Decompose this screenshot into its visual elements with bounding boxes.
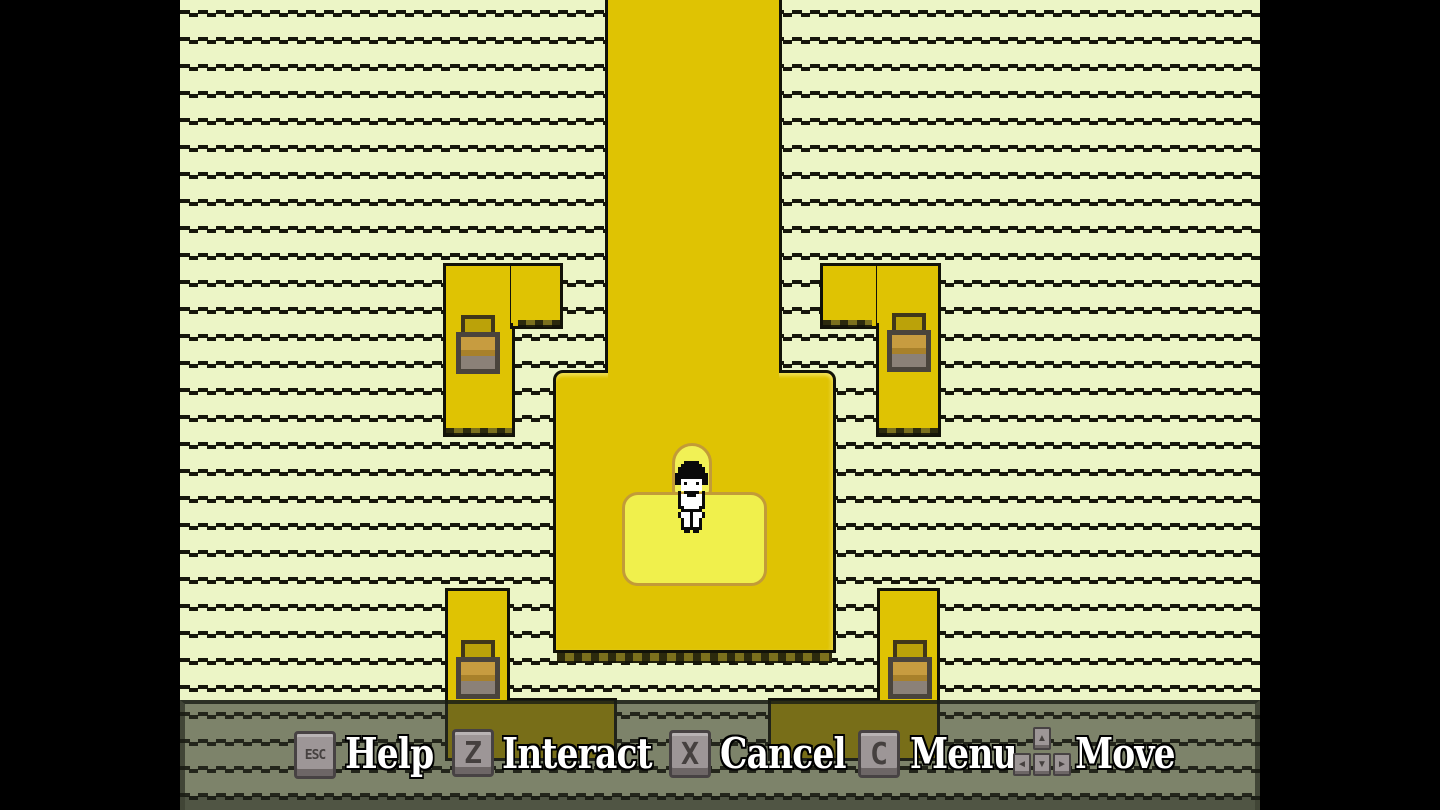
move-label: Move bbox=[1075, 733, 1175, 775]
platform-seam-patch bbox=[877, 266, 883, 323]
c-key[interactable]: C bbox=[858, 730, 900, 778]
picnic-basket-upper-right bbox=[887, 313, 931, 372]
hud-bottom-strip bbox=[185, 796, 1255, 810]
picnic-basket-upper-left bbox=[456, 315, 500, 374]
picnic-basket-lower-left bbox=[456, 640, 500, 699]
esc-key[interactable]: ESC bbox=[294, 731, 336, 779]
picnic-basket-lower-right bbox=[888, 640, 932, 699]
basket-body-icon bbox=[456, 332, 500, 374]
menu-label: Menu bbox=[910, 733, 1017, 775]
right-arrow-key[interactable]: ► bbox=[1053, 753, 1071, 776]
down-arrow-key[interactable]: ▼ bbox=[1033, 753, 1051, 776]
plaza-ledge bbox=[557, 653, 832, 663]
gold-path-top bbox=[605, 0, 782, 378]
interact-label: Interact bbox=[502, 733, 652, 775]
platform-upper-right-arm-ledge bbox=[823, 320, 872, 327]
letterboxed-screen: ESC Help Z Interact X Cancel C Menu ▲ ◄ … bbox=[0, 0, 1440, 810]
x-key[interactable]: X bbox=[669, 730, 711, 778]
path-seam-patch bbox=[608, 367, 779, 383]
platform-seam-patch bbox=[511, 266, 517, 323]
basket-body-icon bbox=[456, 657, 500, 699]
up-arrow-key[interactable]: ▲ bbox=[1033, 727, 1051, 750]
platform-upper-left-arm-ledge bbox=[518, 320, 560, 327]
left-arrow-key[interactable]: ◄ bbox=[1013, 753, 1031, 776]
arrow-keys-icon[interactable]: ▲ ◄ ▼ ► bbox=[1013, 727, 1071, 777]
game-viewport[interactable]: ESC Help Z Interact X Cancel C Menu ▲ ◄ … bbox=[180, 0, 1260, 810]
player-sprite-icon bbox=[672, 461, 711, 539]
cancel-label: Cancel bbox=[720, 733, 846, 775]
basket-body-icon bbox=[888, 657, 932, 699]
basket-body-icon bbox=[887, 330, 931, 372]
player-character bbox=[672, 461, 711, 539]
platform-upper-right-ledge bbox=[879, 428, 938, 435]
platform-upper-left-ledge bbox=[446, 428, 512, 435]
z-key[interactable]: Z bbox=[452, 729, 494, 777]
help-label: Help bbox=[345, 733, 433, 775]
